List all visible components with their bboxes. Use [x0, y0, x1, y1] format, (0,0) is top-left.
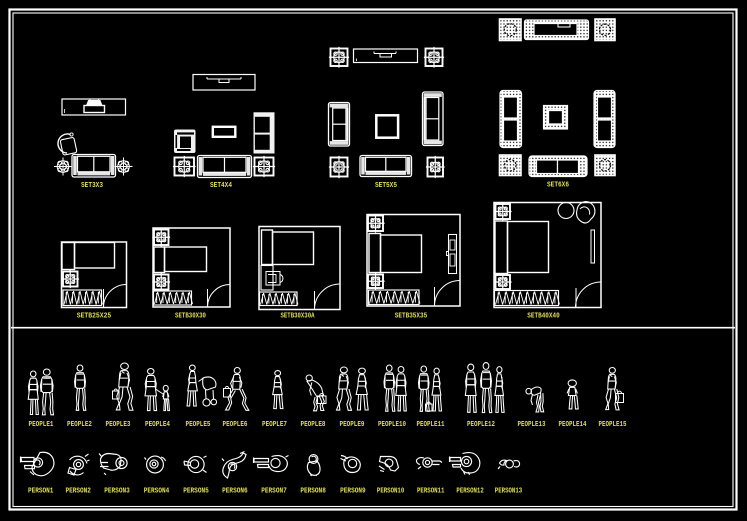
svg-text:PEOPLE9: PEOPLE9: [340, 421, 365, 429]
svg-text:PERSON4: PERSON4: [144, 488, 170, 496]
svg-text:PEOPLE2: PEOPLE2: [67, 421, 92, 429]
svg-text:PEOPLE12: PEOPLE12: [467, 421, 495, 429]
svg-text:PERSON8: PERSON8: [300, 488, 326, 496]
svg-text:PEOPLE7: PEOPLE7: [262, 421, 287, 429]
svg-text:PERSON6: PERSON6: [222, 488, 248, 496]
svg-text:PERSON9: PERSON9: [340, 488, 366, 496]
svg-text:PERSON3: PERSON3: [104, 488, 130, 496]
svg-text:PEOPLE1: PEOPLE1: [29, 421, 54, 429]
svg-text:SET5X5: SET5X5: [375, 182, 397, 190]
svg-text:PERSON13: PERSON13: [495, 488, 523, 496]
svg-text:SET6X6: SET6X6: [547, 182, 569, 190]
svg-text:SETB30X30: SETB30X30: [175, 313, 206, 321]
svg-text:PEOPLE13: PEOPLE13: [518, 421, 546, 429]
svg-text:PERSON2: PERSON2: [65, 488, 91, 496]
svg-text:PERSON11: PERSON11: [417, 488, 445, 496]
svg-text:SETB30X30A: SETB30X30A: [281, 313, 315, 321]
svg-text:PEOPLE8: PEOPLE8: [301, 421, 326, 429]
svg-text:PERSON1: PERSON1: [28, 488, 54, 496]
svg-text:SETB25X25: SETB25X25: [77, 313, 112, 321]
svg-text:SET4X4: SET4X4: [210, 182, 232, 190]
svg-text:SET3X3: SET3X3: [81, 182, 103, 190]
svg-text:PEOPLE6: PEOPLE6: [223, 421, 248, 429]
svg-text:PERSON5: PERSON5: [183, 488, 209, 496]
svg-text:PEOPLE10: PEOPLE10: [378, 421, 406, 429]
svg-text:SETB40X40: SETB40X40: [527, 313, 560, 321]
svg-text:PEOPLE14: PEOPLE14: [559, 421, 587, 429]
svg-text:PERSON10: PERSON10: [377, 488, 405, 496]
svg-text:PEOPLE3: PEOPLE3: [106, 421, 131, 429]
svg-text:PEOPLE5: PEOPLE5: [186, 421, 211, 429]
svg-text:PERSON7: PERSON7: [261, 488, 287, 496]
svg-text:PEOPLE15: PEOPLE15: [599, 421, 627, 429]
svg-text:PEOPLE11: PEOPLE11: [417, 421, 445, 429]
svg-text:PERSON12: PERSON12: [456, 488, 484, 496]
svg-text:SETB35X35: SETB35X35: [395, 313, 428, 321]
svg-text:PEOPLE4: PEOPLE4: [145, 421, 170, 429]
